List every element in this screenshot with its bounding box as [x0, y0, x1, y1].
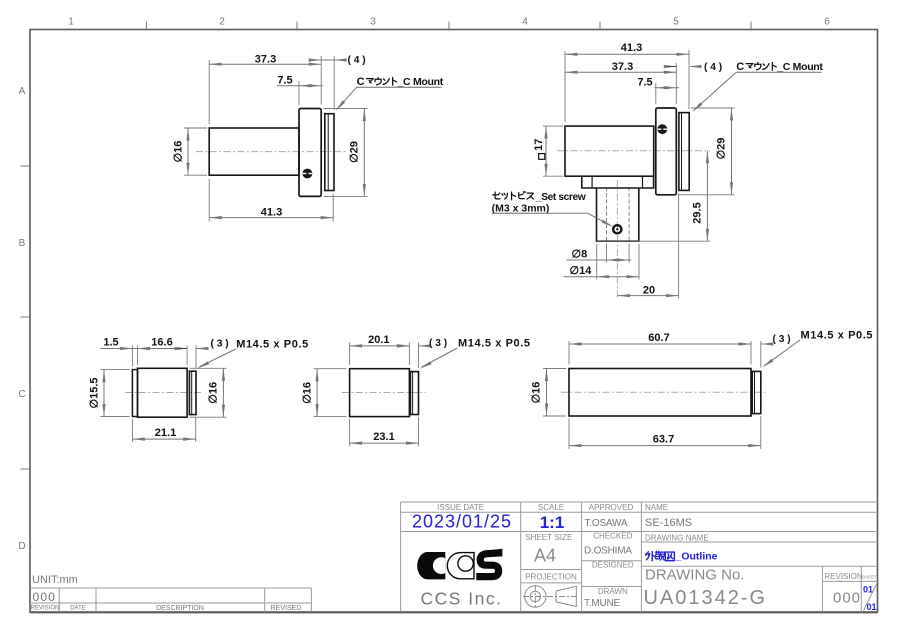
svg-text:T.MUNE: T.MUNE: [584, 598, 621, 609]
svg-text:( 3 ): ( 3 ): [773, 334, 791, 345]
svg-text:C: C: [357, 76, 365, 88]
svg-text:∅14: ∅14: [570, 265, 593, 277]
svg-text:ISSUE DATE: ISSUE DATE: [437, 503, 484, 512]
svg-text:_Outline: _Outline: [675, 551, 718, 563]
svg-text:∅16: ∅16: [302, 382, 314, 404]
svg-text:M14.5 x P0.5: M14.5 x P0.5: [236, 338, 309, 350]
svg-text:DESIGNED: DESIGNED: [592, 560, 634, 569]
svg-text:01: 01: [863, 585, 873, 595]
svg-text:C: C: [18, 389, 25, 400]
svg-text:6: 6: [824, 17, 830, 28]
svg-text:17: 17: [533, 139, 545, 151]
svg-text:4: 4: [522, 17, 528, 28]
svg-text:∅29: ∅29: [716, 138, 728, 160]
svg-text:( 4 ): ( 4 ): [348, 55, 366, 66]
svg-text:∅8: ∅8: [572, 249, 588, 261]
svg-text:7.5: 7.5: [277, 75, 292, 87]
svg-text:37.3: 37.3: [612, 61, 633, 73]
svg-text:UA01342-G: UA01342-G: [644, 587, 768, 609]
svg-text:REVISION: REVISION: [31, 605, 60, 611]
svg-text:∅15.5: ∅15.5: [89, 378, 101, 409]
svg-text:∅16: ∅16: [173, 141, 185, 163]
svg-text:37.3: 37.3: [255, 53, 276, 65]
svg-text:DRAWING No.: DRAWING No.: [645, 566, 744, 583]
svg-text:41.3: 41.3: [261, 206, 282, 218]
svg-text:( 4 ): ( 4 ): [704, 62, 722, 73]
svg-text:( 3 ): ( 3 ): [211, 338, 229, 349]
svg-text:29.5: 29.5: [692, 202, 704, 223]
svg-text:DESCRIPTION: DESCRIPTION: [156, 605, 204, 612]
svg-text:CHECKED: CHECKED: [593, 532, 632, 541]
svg-text:23.1: 23.1: [373, 431, 394, 443]
svg-text:SE-16MS: SE-16MS: [645, 517, 692, 529]
svg-text:A: A: [19, 86, 26, 97]
svg-text:2: 2: [219, 17, 225, 28]
svg-text:000: 000: [33, 590, 57, 604]
svg-text:∅16: ∅16: [207, 382, 219, 404]
svg-text:UNIT:mm: UNIT:mm: [32, 574, 78, 586]
svg-text:A4: A4: [534, 546, 556, 566]
svg-text:PROJECTION: PROJECTION: [525, 573, 577, 582]
svg-text:NAME: NAME: [645, 503, 668, 512]
svg-text:APPROVED: APPROVED: [589, 503, 634, 512]
svg-text:41.3: 41.3: [621, 42, 642, 54]
svg-text:CCS Inc.: CCS Inc.: [420, 589, 502, 609]
svg-text:7.5: 7.5: [637, 77, 652, 89]
svg-text:T.OSAWA: T.OSAWA: [585, 518, 628, 529]
svg-text:REVISION: REVISION: [824, 572, 862, 581]
svg-text:3: 3: [370, 17, 376, 28]
svg-text:20.1: 20.1: [368, 334, 389, 346]
svg-text:D: D: [18, 541, 25, 552]
svg-text:SCALE: SCALE: [538, 503, 564, 512]
svg-text:M14.5 x P0.5: M14.5 x P0.5: [801, 329, 874, 341]
svg-text:21.1: 21.1: [155, 427, 176, 439]
svg-text:DRAWN: DRAWN: [598, 587, 628, 596]
svg-text:_C Mount: _C Mount: [776, 61, 823, 73]
svg-text:SHEET: SHEET: [862, 574, 878, 579]
svg-text:DRAWING NAME: DRAWING NAME: [645, 534, 709, 543]
svg-text:_Set screw: _Set screw: [535, 192, 586, 203]
svg-text:(M3 x 3mm): (M3 x 3mm): [492, 202, 550, 214]
svg-text:D.OSHIMA: D.OSHIMA: [584, 546, 632, 557]
svg-text:63.7: 63.7: [653, 434, 674, 446]
svg-text:000: 000: [833, 590, 861, 607]
svg-text:_C Mount: _C Mount: [397, 76, 444, 88]
svg-text:∅16: ∅16: [531, 382, 543, 404]
svg-text:SHEET: SHEET: [525, 533, 552, 542]
svg-text:( 3 ): ( 3 ): [429, 338, 447, 349]
svg-text:5: 5: [673, 17, 679, 28]
svg-text:1.5: 1.5: [103, 337, 118, 349]
svg-text:DATE: DATE: [70, 605, 86, 611]
svg-text:B: B: [19, 238, 26, 249]
svg-text:60.7: 60.7: [648, 332, 669, 344]
svg-text:20: 20: [643, 284, 655, 296]
svg-text:2023/01/25: 2023/01/25: [412, 512, 512, 532]
svg-text:REVISED: REVISED: [271, 605, 302, 612]
svg-text:01: 01: [867, 602, 877, 612]
svg-text:M14.5 x P0.5: M14.5 x P0.5: [458, 337, 531, 349]
svg-text:1:1: 1:1: [540, 513, 565, 532]
svg-text:1: 1: [68, 17, 74, 28]
svg-text:∅29: ∅29: [349, 141, 361, 163]
svg-text:SIZE: SIZE: [555, 533, 573, 542]
svg-text:C: C: [736, 61, 744, 73]
svg-text:16.6: 16.6: [151, 337, 172, 349]
